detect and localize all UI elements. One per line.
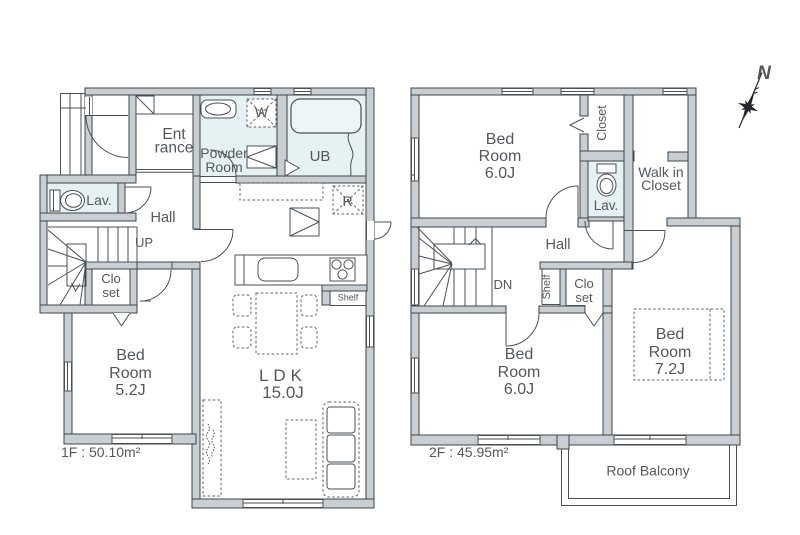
svg-text:Bed: Bed [505, 346, 533, 363]
svg-text:Closet: Closet [595, 105, 609, 141]
svg-text:Clo: Clo [101, 271, 121, 286]
svg-text:Lav.: Lav. [594, 198, 619, 213]
svg-text:W: W [255, 104, 269, 120]
svg-text:N: N [757, 63, 772, 84]
svg-text:Closet: Closet [641, 177, 681, 193]
svg-text:5.2J: 5.2J [115, 382, 145, 399]
svg-text:Shelf: Shelf [338, 293, 359, 303]
svg-text:Room: Room [109, 365, 152, 382]
svg-text:UB: UB [310, 148, 331, 165]
svg-text:Hall: Hall [151, 210, 176, 226]
svg-text:Lav.: Lav. [86, 192, 111, 208]
svg-text:6.0J: 6.0J [504, 381, 534, 398]
svg-text:R: R [342, 193, 352, 209]
svg-text:Bed: Bed [116, 347, 144, 364]
svg-text:Room: Room [479, 148, 522, 165]
svg-text:6.0J: 6.0J [485, 165, 515, 182]
svg-text:7.2J: 7.2J [655, 361, 685, 378]
svg-text:Clo: Clo [574, 276, 594, 291]
svg-text:rance: rance [155, 140, 194, 157]
svg-text:2F : 45.95m²: 2F : 45.95m² [429, 444, 509, 460]
svg-text:DN: DN [494, 277, 513, 292]
svg-text:Bed: Bed [656, 326, 684, 343]
svg-text:Room: Room [205, 159, 242, 175]
svg-text:set: set [575, 290, 593, 305]
svg-text:1F : 50.10m²: 1F : 50.10m² [61, 444, 141, 460]
svg-text:Bed: Bed [486, 131, 514, 148]
svg-text:Hall: Hall [546, 237, 571, 253]
svg-text:Shelf: Shelf [541, 274, 553, 300]
svg-text:UP: UP [135, 235, 153, 250]
svg-text:Roof Balcony: Roof Balcony [606, 463, 689, 479]
svg-text:15.0J: 15.0J [262, 383, 304, 402]
svg-text:Room: Room [649, 344, 692, 361]
svg-text:Room: Room [498, 364, 541, 381]
svg-text:set: set [102, 285, 120, 300]
